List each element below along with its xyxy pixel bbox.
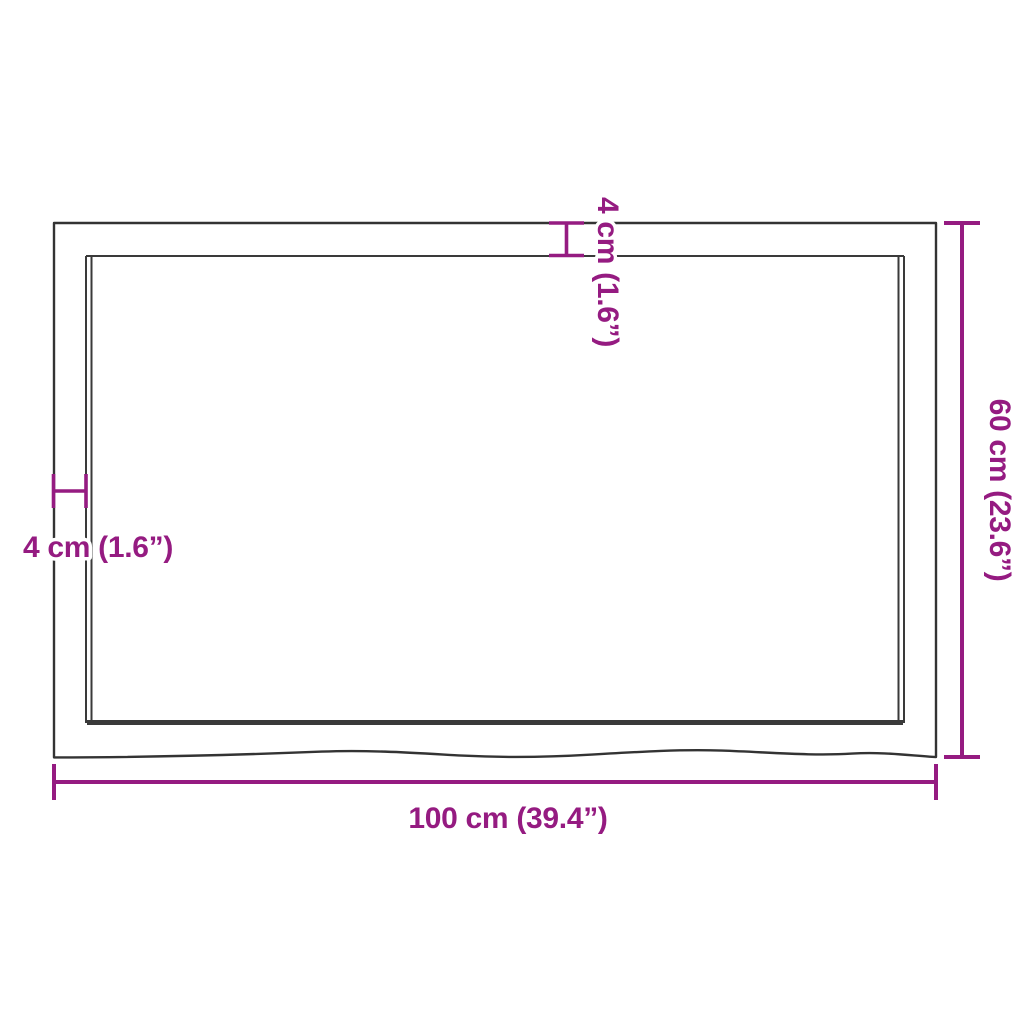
tabletop-outer-outline [54, 223, 936, 757]
width-dimension-label: 100 cm (39.4”) [408, 802, 607, 835]
thickness-top-label: 4 cm (1.6”) [591, 197, 624, 347]
thickness-marker-left: 4 cm (1.6”) [23, 474, 173, 564]
tabletop-inner-face [86, 256, 904, 723]
width-dimension: 100 cm (39.4”) [54, 764, 936, 835]
thickness-left-label: 4 cm (1.6”) [23, 531, 173, 564]
thickness-marker-top: 4 cm (1.6”) [549, 197, 624, 347]
height-dimension-label: 60 cm (23.6”) [983, 399, 1016, 582]
dimension-diagram-canvas: 100 cm (39.4”) 60 cm (23.6”) 4 cm (1.6”)… [0, 0, 1024, 1024]
tabletop-dimension-diagram: 100 cm (39.4”) 60 cm (23.6”) 4 cm (1.6”)… [0, 0, 1024, 1024]
height-dimension: 60 cm (23.6”) [944, 223, 1016, 757]
